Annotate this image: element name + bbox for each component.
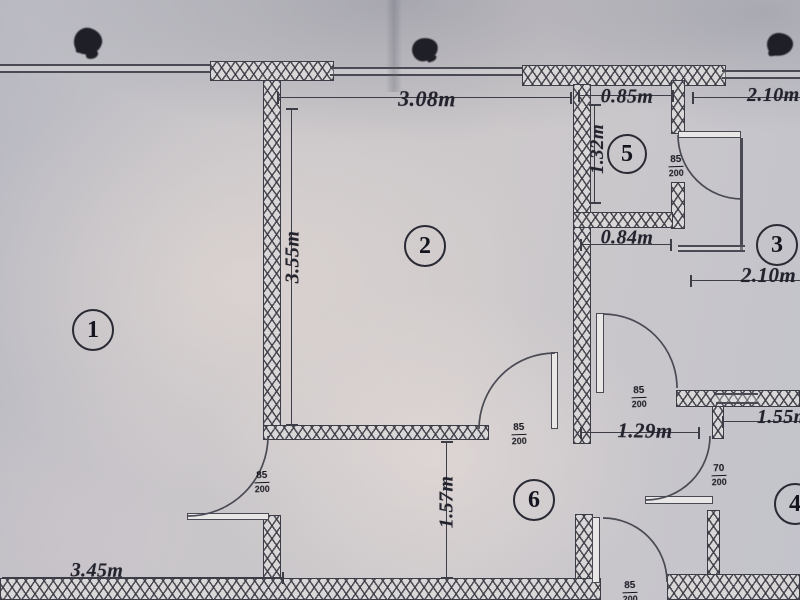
wall-top-hatched-2	[522, 65, 726, 86]
dim-label-room4-top: 1.55m	[757, 406, 800, 429]
opening-room3-room4	[716, 393, 758, 404]
paper-crease	[386, 0, 402, 92]
door-size-room2-hall-width: 85	[513, 422, 525, 433]
door-size-bottom-exit-width: 85	[624, 580, 636, 591]
door-size-hall-room3-height: 200	[632, 399, 647, 410]
door-size-hall-room3: 85200	[631, 385, 647, 409]
wall-room5-door-jamb-bottom	[671, 182, 685, 229]
room-number-1-text: 1	[87, 317, 99, 344]
door-leaf-room5	[678, 131, 741, 138]
door-size-room2-hall: 85200	[511, 422, 527, 446]
door-arc-hall-room3	[603, 314, 677, 388]
floorplan-photo: 3.08m 0.85m 2.10m 1.32m 0.84m 2.10m 3.55…	[0, 0, 800, 600]
room-number-4: 4	[774, 483, 800, 525]
dim-label-hall-width: 1.29m	[617, 418, 672, 444]
dim-label-room2-left: 3.55m	[282, 231, 305, 284]
door-size-room4: 70200	[711, 463, 727, 487]
room-number-5: 5	[607, 134, 647, 174]
wall-room5-door-jamb-top	[671, 80, 685, 134]
room-number-1: 1	[72, 309, 114, 351]
floorplan-drawing: 3.08m 0.85m 2.10m 1.32m 0.84m 2.10m 3.55…	[0, 0, 800, 600]
door-size-room1-width: 85	[256, 470, 268, 481]
door-size-room5: 85200	[668, 154, 684, 178]
dim-label-top-room3: 2.10m	[747, 84, 800, 107]
window-wall-top-middle	[330, 67, 526, 76]
room-number-6-text: 6	[528, 487, 540, 514]
window-wall-top-left	[0, 64, 214, 73]
door-size-room1: 85200	[254, 470, 270, 494]
door-leaf-room2-hall	[551, 352, 558, 429]
room-number-2: 2	[404, 225, 446, 267]
dimension-line-3.45	[2, 577, 284, 578]
window-wall-top-right	[722, 70, 800, 79]
ink-smudge-top-middle	[410, 36, 440, 63]
dim-label-room5-left: 1.32m	[587, 124, 609, 174]
door-size-hall-room3-width: 85	[633, 385, 645, 396]
wall-nook-vertical	[740, 138, 743, 252]
door-size-room2-hall-height: 200	[512, 436, 527, 447]
wall-room2-room6	[263, 425, 489, 440]
room-number-5-text: 5	[621, 141, 633, 168]
room-number-3: 3	[756, 224, 798, 266]
ink-smudge-top-left	[71, 25, 105, 58]
door-size-room1-height: 200	[255, 484, 270, 495]
dim-label-below-room5: 0.84m	[601, 226, 654, 250]
door-arc-room2-hall	[479, 353, 555, 429]
door-size-room4-height: 200	[712, 477, 727, 488]
door-size-bottom-exit: 85200	[622, 580, 638, 600]
ink-smudge-top-right	[766, 32, 794, 57]
door-arc-room5	[678, 135, 742, 199]
door-size-room5-height: 200	[669, 168, 684, 179]
dim-label-top-room5: 0.85m	[601, 85, 654, 109]
wall-middle-vertical-lower	[575, 514, 593, 586]
door-size-room5-width: 85	[670, 154, 682, 165]
room-number-2-text: 2	[419, 233, 431, 260]
wall-room1-room2-upper	[263, 80, 281, 428]
door-leaf-room4	[645, 496, 713, 504]
wall-nook-horizontal	[678, 245, 745, 252]
wall-bottom-right	[667, 574, 800, 600]
room-number-3-text: 3	[771, 232, 783, 259]
door-leaf-bottom-exit	[592, 517, 600, 583]
door-size-bottom-exit-height: 200	[623, 594, 638, 600]
door-arc-bottom-exit	[603, 518, 667, 582]
door-leaf-hall-room3	[596, 313, 604, 393]
door-leaf-room1	[187, 513, 269, 520]
room-number-4-text: 4	[789, 491, 800, 518]
room-number-6: 6	[513, 479, 555, 521]
wall-top-hatched-1	[210, 61, 334, 81]
door-size-room4-width: 70	[713, 463, 725, 474]
door-arc-room4	[646, 436, 710, 500]
dim-label-hall-height: 1.57m	[436, 476, 459, 529]
dim-label-room3-right: 2.10m	[741, 263, 796, 288]
dim-label-room1-bottom: 3.45m	[71, 559, 124, 583]
dim-label-top-room2: 3.08m	[398, 86, 456, 113]
